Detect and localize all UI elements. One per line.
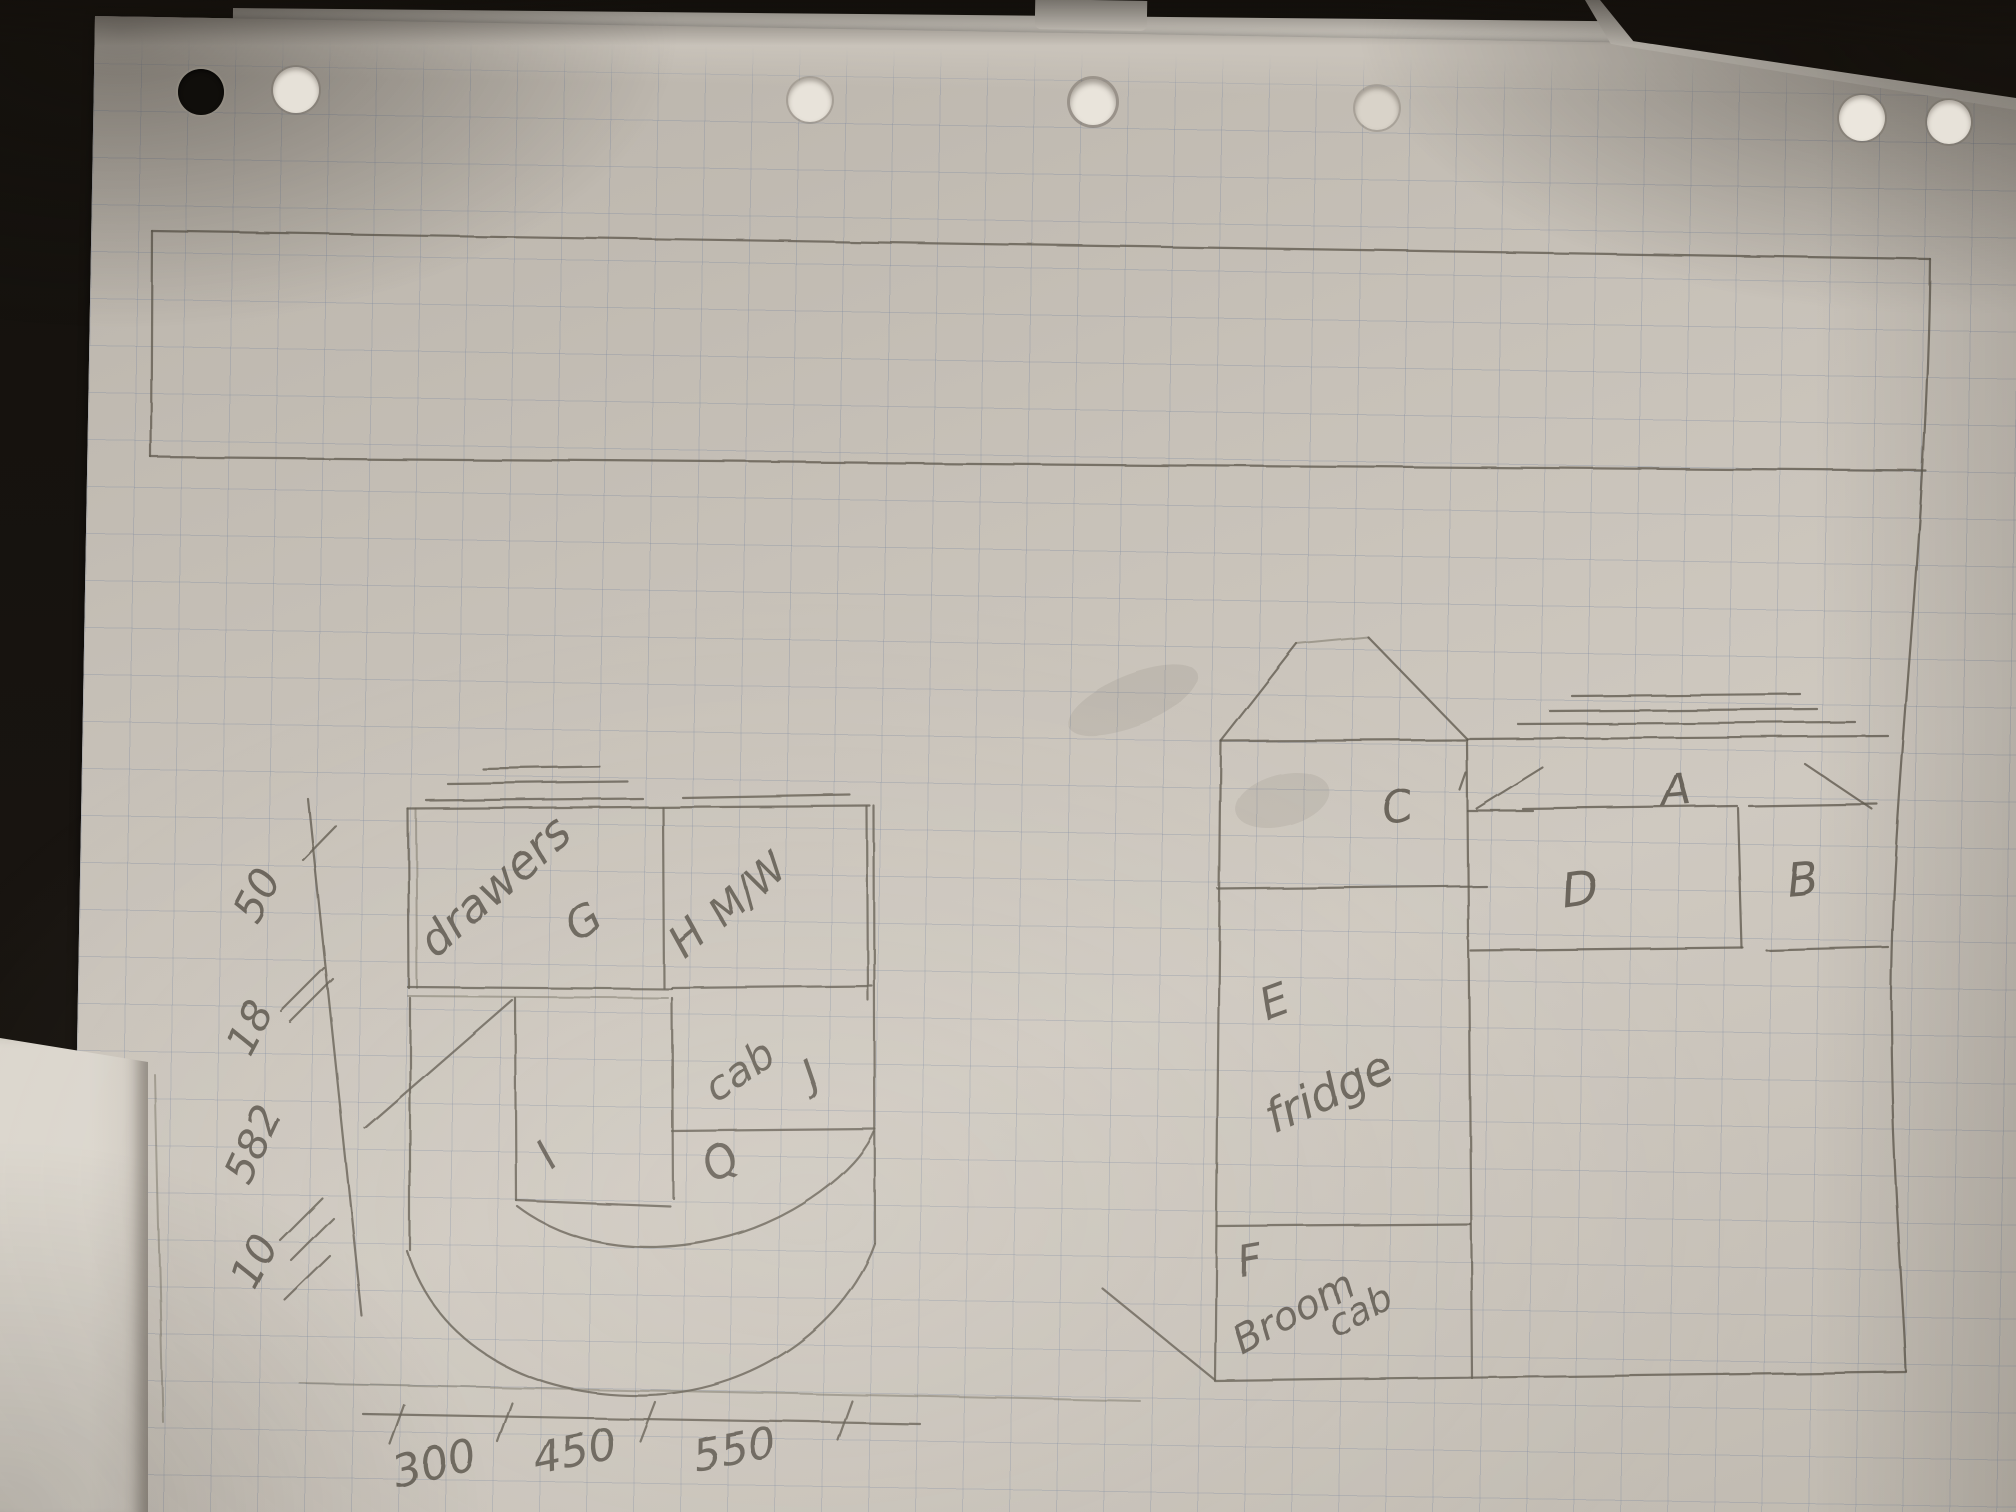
paper-crease [300,1383,1140,1401]
punch-hole-1 [178,69,224,115]
dim-582: 582 [214,1097,292,1190]
label-a: A [1657,764,1694,818]
label-e: E [1253,974,1297,1032]
right-plan [1103,637,1906,1381]
corner-diagonal [365,1000,512,1128]
dim-300: 300 [388,1429,482,1499]
photo-of-sketch: drawers G H M/W I cab J Q C A D B E frid… [0,0,2016,1512]
wall-hatch-lines [427,767,850,801]
dim-10: 10 [220,1226,288,1296]
erased-smudge [1058,650,1207,751]
db-cabinet-box [1471,804,1888,951]
punch-hole-7 [1927,100,1971,144]
label-c: C [1378,780,1417,836]
lower-cabinet-box [365,998,875,1250]
punch-hole-2 [273,67,319,113]
left-plan [365,767,875,1395]
punch-hole-4 [1070,79,1116,125]
dim-18: 18 [215,992,283,1062]
label-j: J [787,1050,828,1102]
label-fridge: fridge [1256,1039,1401,1143]
margin-line [155,1075,163,1422]
bottom-wall [1215,1372,1906,1381]
label-cab: cab [694,1028,784,1111]
fridge-column [1103,637,1486,1380]
dim-50: 50 [223,860,291,930]
label-g: G [555,891,612,952]
dim-550: 550 [689,1417,781,1482]
label-mw: M/W [700,843,797,937]
label-d: D [1558,859,1602,920]
label-h: H [659,908,717,968]
label-i: I [526,1132,567,1178]
label-q: Q [692,1131,750,1193]
erased-smudge [1229,762,1335,837]
punch-hole-6 [1839,95,1885,141]
counter-arc-outer [407,1244,875,1395]
label-b: B [1785,851,1821,908]
punch-hole-5 [1355,86,1399,130]
floor-plan-sketch: drawers G H M/W I cab J Q C A D B E frid… [0,0,2016,1512]
label-drawers: drawers [407,804,581,968]
punch-hole-3 [788,78,832,122]
label-f: F [1233,1233,1266,1286]
dim-450: 450 [529,1418,622,1485]
corner-diagonal [1103,1289,1215,1380]
